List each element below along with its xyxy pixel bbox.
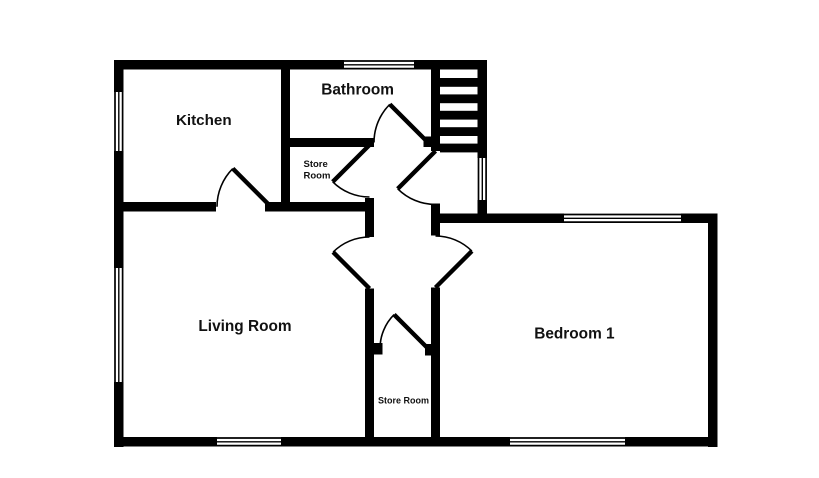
svg-text:Store Room: Store Room (378, 395, 429, 405)
svg-text:Room: Room (304, 171, 331, 182)
svg-text:Bathroom: Bathroom (321, 82, 394, 99)
svg-text:Bedroom 1: Bedroom 1 (534, 326, 615, 343)
svg-text:Store: Store (304, 159, 328, 170)
svg-text:Living Room: Living Room (198, 318, 291, 335)
svg-text:Kitchen: Kitchen (176, 112, 232, 129)
